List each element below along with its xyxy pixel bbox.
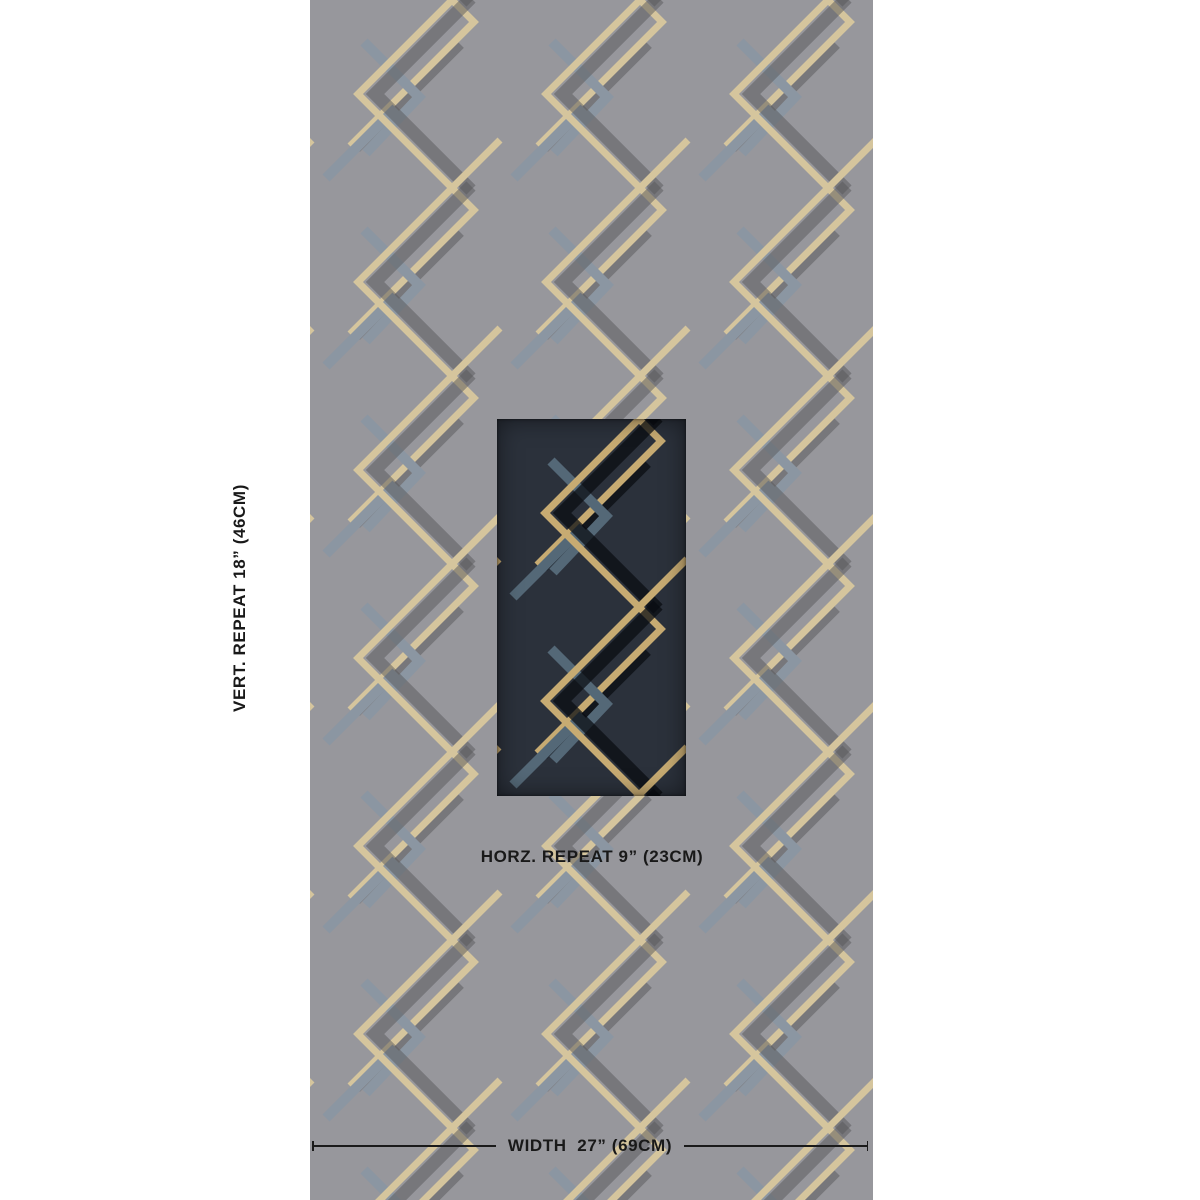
width-measure-tick-left bbox=[312, 1141, 314, 1151]
vertical-repeat-label: VERT. REPEAT 18” (46CM) bbox=[230, 484, 250, 712]
swatch-pattern-art bbox=[497, 419, 686, 796]
width-measurement: WIDTH 27” (69CM) bbox=[312, 1137, 868, 1155]
horizontal-repeat-label: HORZ. REPEAT 9” (23CM) bbox=[481, 847, 704, 867]
product-dimension-diagram: VERT. REPEAT 18” (46CM) HORZ. REPEAT 9” … bbox=[0, 0, 1200, 1200]
width-measure-tick-right bbox=[867, 1141, 869, 1151]
width-measure-line-right bbox=[684, 1145, 868, 1147]
width-label: WIDTH 27” (69CM) bbox=[496, 1137, 684, 1155]
pattern-repeat-swatch bbox=[497, 419, 686, 796]
width-measure-line-left bbox=[312, 1145, 496, 1147]
